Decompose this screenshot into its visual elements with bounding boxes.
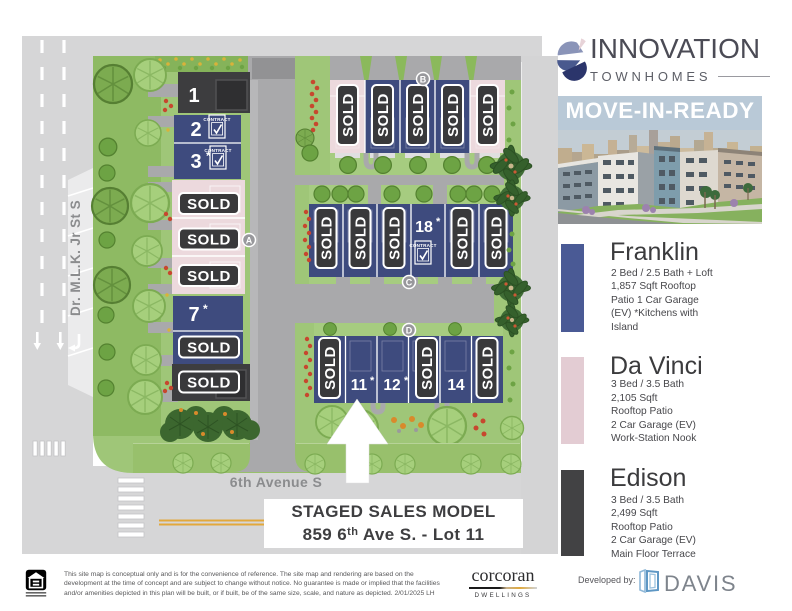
svg-text:C: C [406,278,413,288]
svg-text:14: 14 [447,377,465,394]
svg-text:2: 2 [190,119,201,141]
svg-text:7: 7 [188,304,199,326]
svg-text:Dr. M.L.K. Jr St S: Dr. M.L.K. Jr St S [68,200,83,316]
svg-text:*: * [404,375,409,387]
svg-text:*: * [203,302,208,316]
svg-text:18: 18 [415,219,433,236]
svg-text:12: 12 [383,377,400,394]
svg-text:*: * [370,375,375,387]
svg-text:11: 11 [351,377,368,394]
svg-text:6th Avenue S: 6th Avenue S [230,474,322,490]
svg-text:3: 3 [190,151,201,173]
svg-text:D: D [406,326,413,336]
svg-text:A: A [246,236,253,246]
svg-text:*: * [436,216,441,228]
svg-text:MOVE-IN-READY: MOVE-IN-READY [565,98,754,123]
svg-text:B: B [420,75,427,85]
svg-text:1: 1 [188,85,199,107]
